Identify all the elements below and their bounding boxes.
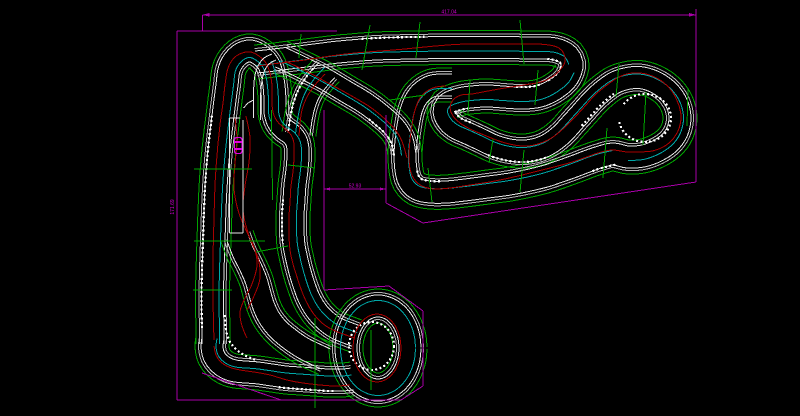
svg-text:417.04: 417.04 bbox=[441, 10, 457, 16]
svg-text:52.93: 52.93 bbox=[349, 184, 362, 190]
svg-text:171.69: 171.69 bbox=[170, 199, 176, 215]
